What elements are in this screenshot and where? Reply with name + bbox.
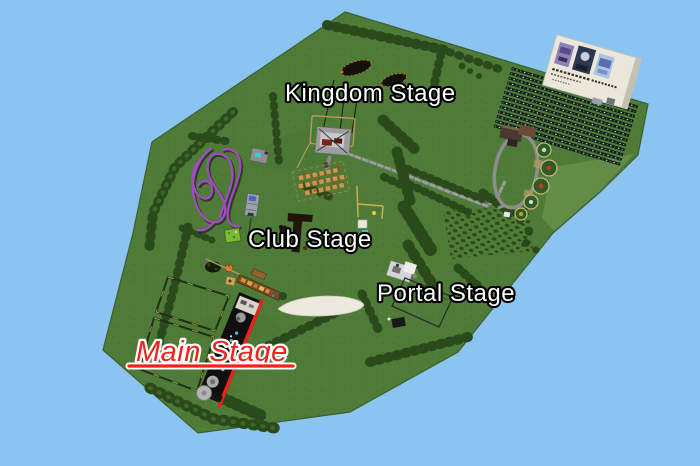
dark-garden bbox=[205, 262, 221, 273]
garden-kiosk bbox=[504, 212, 511, 218]
lime-pen bbox=[224, 228, 241, 243]
label-club-stage: Club Stage bbox=[248, 226, 372, 253]
stage-platform bbox=[315, 127, 351, 156]
label-kingdom-stage: Kingdom Stage bbox=[285, 80, 456, 107]
venue-map: Kingdom Stage Club Stage Portal Stage Ma… bbox=[0, 0, 700, 466]
label-portal-stage: Portal Stage bbox=[377, 280, 515, 307]
